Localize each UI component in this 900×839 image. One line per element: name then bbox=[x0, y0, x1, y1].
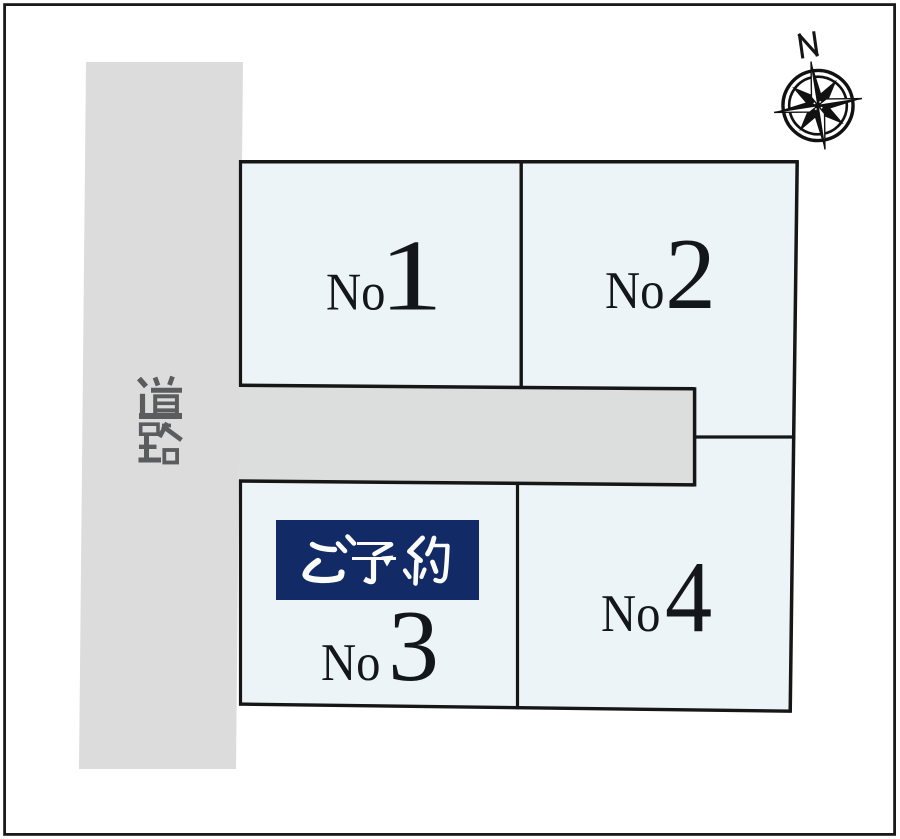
svg-text:3: 3 bbox=[388, 590, 439, 703]
svg-text:2: 2 bbox=[665, 218, 716, 331]
svg-text:No: No bbox=[321, 634, 381, 692]
svg-text:No: No bbox=[326, 264, 386, 322]
svg-text:4: 4 bbox=[665, 541, 712, 654]
svg-text:No: No bbox=[601, 585, 661, 643]
svg-text:No: No bbox=[605, 262, 665, 320]
svg-text:1: 1 bbox=[379, 220, 443, 333]
